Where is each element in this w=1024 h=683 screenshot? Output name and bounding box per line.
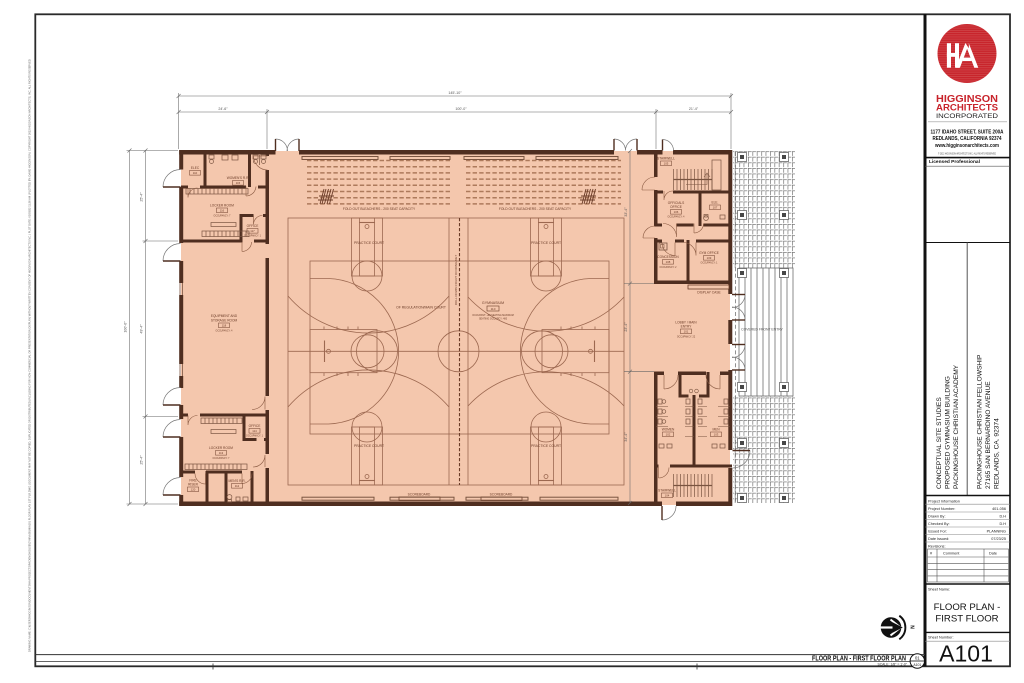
svg-text:OF REGULATION/MAIN COURT: OF REGULATION/MAIN COURT (396, 306, 446, 310)
svg-text:SCOREBOARD: SCOREBOARD (408, 492, 431, 496)
svg-text:100'-0": 100'-0" (124, 321, 128, 333)
svg-text:Date Issued:: Date Issued: (928, 537, 949, 541)
svg-text:106: 106 (674, 210, 679, 214)
svg-text:Project Number:: Project Number: (928, 507, 955, 511)
svg-text:LOCKER ROOM: LOCKER ROOM (209, 446, 233, 450)
svg-text:113: 113 (219, 451, 224, 455)
svg-text:DISPLAY CASE: DISPLAY CASE (697, 291, 721, 295)
svg-text:114: 114 (252, 429, 257, 433)
svg-text:FIRST FLOOR: FIRST FLOOR (935, 614, 998, 625)
svg-text:25'-4": 25'-4" (140, 192, 144, 202)
svg-text:OFFICE: OFFICE (670, 205, 682, 209)
svg-text:INCORPORATED: INCORPORATED (936, 113, 998, 120)
svg-text:MEN: MEN (712, 428, 720, 432)
svg-text:GYMNASIUM: GYMNASIUM (482, 301, 504, 305)
svg-text:109: 109 (707, 256, 712, 260)
svg-text:100'-0": 100'-0" (455, 107, 467, 111)
svg-text:FLOOR PLAN - FIRST FLOOR PLAN: FLOOR PLAN - FIRST FLOOR PLAN (812, 655, 906, 662)
svg-text:104: 104 (665, 494, 670, 498)
svg-text:OCCUPANCY: 1: OCCUPANCY: 1 (701, 262, 719, 265)
svg-text:112: 112 (235, 484, 240, 488)
svg-text:Sheet Name:: Sheet Name: (928, 588, 950, 592)
svg-text:102: 102 (666, 433, 671, 437)
svg-text:33'-4": 33'-4" (624, 207, 628, 217)
svg-text:REDLANDS, CALIFORNIA 92374: REDLANDS, CALIFORNIA 92374 (933, 136, 1003, 142)
svg-text:25'-4": 25'-4" (140, 455, 144, 465)
svg-text:FLOOR PLAN -: FLOOR PLAN - (934, 602, 1001, 613)
svg-text:OCCUPANCY: 7: OCCUPANCY: 7 (213, 457, 231, 460)
svg-text:PACKINGHOUSE CHRISTIAN FELLOWS: PACKINGHOUSE CHRISTIAN FELLOWSHIP (977, 354, 984, 489)
svg-text:01: 01 (915, 656, 920, 661)
svg-text:OCCUPANCY: 2: OCCUPANCY: 2 (660, 266, 678, 269)
svg-text:ELEC: ELEC (191, 166, 200, 170)
svg-text:SCOREBOARD: SCOREBOARD (490, 492, 513, 496)
svg-text:120: 120 (191, 488, 196, 492)
svg-text:PRACTICE COURT: PRACTICE COURT (531, 241, 561, 245)
svg-text:PROPOSED GYMNASIUM BUILDING: PROPOSED GYMNASIUM BUILDING (945, 376, 952, 489)
svg-text:110: 110 (193, 171, 198, 175)
svg-text:110: 110 (491, 307, 496, 311)
svg-text:116: 116 (220, 209, 225, 213)
svg-text:D.H: D.H (999, 522, 1006, 526)
svg-text:108: 108 (666, 260, 671, 264)
svg-text:A101: A101 (913, 663, 921, 667)
svg-text:117: 117 (250, 229, 255, 233)
svg-text:OFFICE: OFFICE (249, 424, 261, 428)
svg-text:CONCEPTUAL SITE STUDIES: CONCEPTUAL SITE STUDIES (936, 397, 943, 489)
svg-text:REDLANDS, CA. 92374: REDLANDS, CA. 92374 (994, 418, 1001, 489)
svg-text:ENTRY: ENTRY (681, 325, 693, 329)
svg-text:CONCESSION: CONCESSION (657, 255, 679, 259)
svg-text:34'-4": 34'-4" (624, 432, 628, 442)
svg-text:OCCUPANCY: 4: OCCUPANCY: 4 (668, 216, 686, 219)
svg-text:COVERED FRONT ENTRY: COVERED FRONT ENTRY (741, 328, 783, 332)
svg-text:WOMEN'S R.R.: WOMEN'S R.R. (227, 176, 250, 180)
svg-text:23'-4": 23'-4" (624, 322, 628, 332)
svg-text:D.H: D.H (999, 515, 1006, 519)
svg-text:FOLD OUT BLEACHERS - 200 SEAT: FOLD OUT BLEACHERS - 200 SEAT CAPACITY (499, 207, 572, 211)
svg-text:SEATING OCCUPCY: 400: SEATING OCCUPCY: 400 (479, 318, 508, 321)
svg-text:1177 IDAHO STREET, SUITE 200A: 1177 IDAHO STREET, SUITE 200A (931, 130, 1004, 136)
svg-text:ARCHITECTS: ARCHITECTS (936, 102, 998, 112)
svg-text:105: 105 (664, 162, 669, 166)
svg-text:ROLL DOWN COURT DIVIDING NET: ROLL DOWN COURT DIVIDING NET (454, 255, 458, 306)
svg-text:ELE.: ELE. (712, 201, 719, 205)
svg-text:PACKINGHOUSE CHRISTIAN ACADEMY: PACKINGHOUSE CHRISTIAN ACADEMY (953, 364, 960, 489)
svg-text:OCCUPANCY: 22: OCCUPANCY: 22 (677, 336, 696, 339)
svg-text:#: # (930, 552, 933, 556)
svg-text:OCCUPANCY: 1: OCCUPANCY: 1 (244, 235, 262, 238)
svg-text:101: 101 (684, 330, 689, 334)
svg-text:WOMEN: WOMEN (662, 428, 675, 432)
svg-text:MEN'S R.R.: MEN'S R.R. (228, 479, 245, 483)
svg-text:115: 115 (236, 181, 241, 185)
svg-text:Revisions:: Revisions: (928, 544, 946, 548)
svg-text:EQUIPMENT AND: EQUIPMENT AND (211, 314, 238, 318)
svg-text:103: 103 (714, 433, 719, 437)
svg-text:Licensed Professional: Licensed Professional (929, 159, 980, 165)
svg-text:07/23/25: 07/23/25 (991, 537, 1006, 541)
svg-text:N: N (909, 625, 915, 629)
svg-text:STAIRWELL: STAIRWELL (657, 157, 675, 161)
svg-text:24'-6": 24'-6" (218, 107, 228, 111)
svg-text:DRAWING NAME: C:\USERS\HIGGINS: DRAWING NAME: C:\USERS\HIGGINSON\DOCUMEN… (28, 59, 32, 652)
svg-text:GYM OFFICE: GYM OFFICE (699, 251, 719, 255)
svg-text:118: 118 (222, 324, 227, 328)
svg-text:Issued For:: Issued For: (928, 530, 947, 534)
svg-text:PRACTICE COURT: PRACTICE COURT (354, 241, 384, 245)
svg-text:STAIRWELL: STAIRWELL (658, 489, 676, 493)
svg-text:27165 SAN BERNARDINO AVENUE: 27165 SAN BERNARDINO AVENUE (985, 381, 992, 489)
svg-text:Project Information: Project Information (928, 499, 960, 503)
svg-text:PLANNING: PLANNING (987, 530, 1006, 534)
svg-text:SCALE: 1/8" = 1'-0": SCALE: 1/8" = 1'-0" (877, 663, 907, 667)
svg-text:OCCUPANCY: 7: OCCUPANCY: 7 (214, 215, 232, 218)
svg-text:401-056: 401-056 (992, 507, 1006, 511)
svg-text:A101: A101 (939, 641, 993, 667)
svg-text:Date: Date (989, 552, 997, 556)
svg-text:107: 107 (713, 206, 718, 210)
svg-text:49'-4": 49'-4" (140, 324, 144, 334)
svg-text:Checked By:: Checked By: (928, 522, 950, 526)
svg-text:LOCKER ROOM: LOCKER ROOM (210, 204, 234, 208)
svg-text:Sheet Number:: Sheet Number: (928, 636, 954, 640)
svg-text:STORAGE ROOM: STORAGE ROOM (211, 319, 238, 323)
svg-text:Comment: Comment (943, 552, 960, 556)
svg-text:PRACTICE COURT: PRACTICE COURT (354, 444, 384, 448)
svg-text:PRACTICE COURT: PRACTICE COURT (531, 444, 561, 448)
svg-text:FOLD OUT BLEACHERS - 200 SEAT: FOLD OUT BLEACHERS - 200 SEAT CAPACITY (343, 207, 416, 211)
svg-text:Drawn By:: Drawn By: (928, 515, 946, 519)
svg-text:OCCUPANCY: 4: OCCUPANCY: 4 (216, 330, 234, 333)
svg-text:21'-4": 21'-4" (689, 107, 699, 111)
svg-text:145'-10": 145'-10" (448, 91, 462, 95)
svg-text:© 2022 HIGGINSON ARCHITECTS IN: © 2022 HIGGINSON ARCHITECTS INC. ALL RIG… (938, 152, 996, 156)
svg-text:OCCUPANCY: 1: OCCUPANCY: 1 (246, 435, 264, 438)
svg-text:www.higginsonarchitects.com: www.higginsonarchitects.com (934, 143, 999, 149)
svg-text:OFFICE: OFFICE (247, 224, 259, 228)
svg-text:RISER: RISER (188, 483, 198, 487)
